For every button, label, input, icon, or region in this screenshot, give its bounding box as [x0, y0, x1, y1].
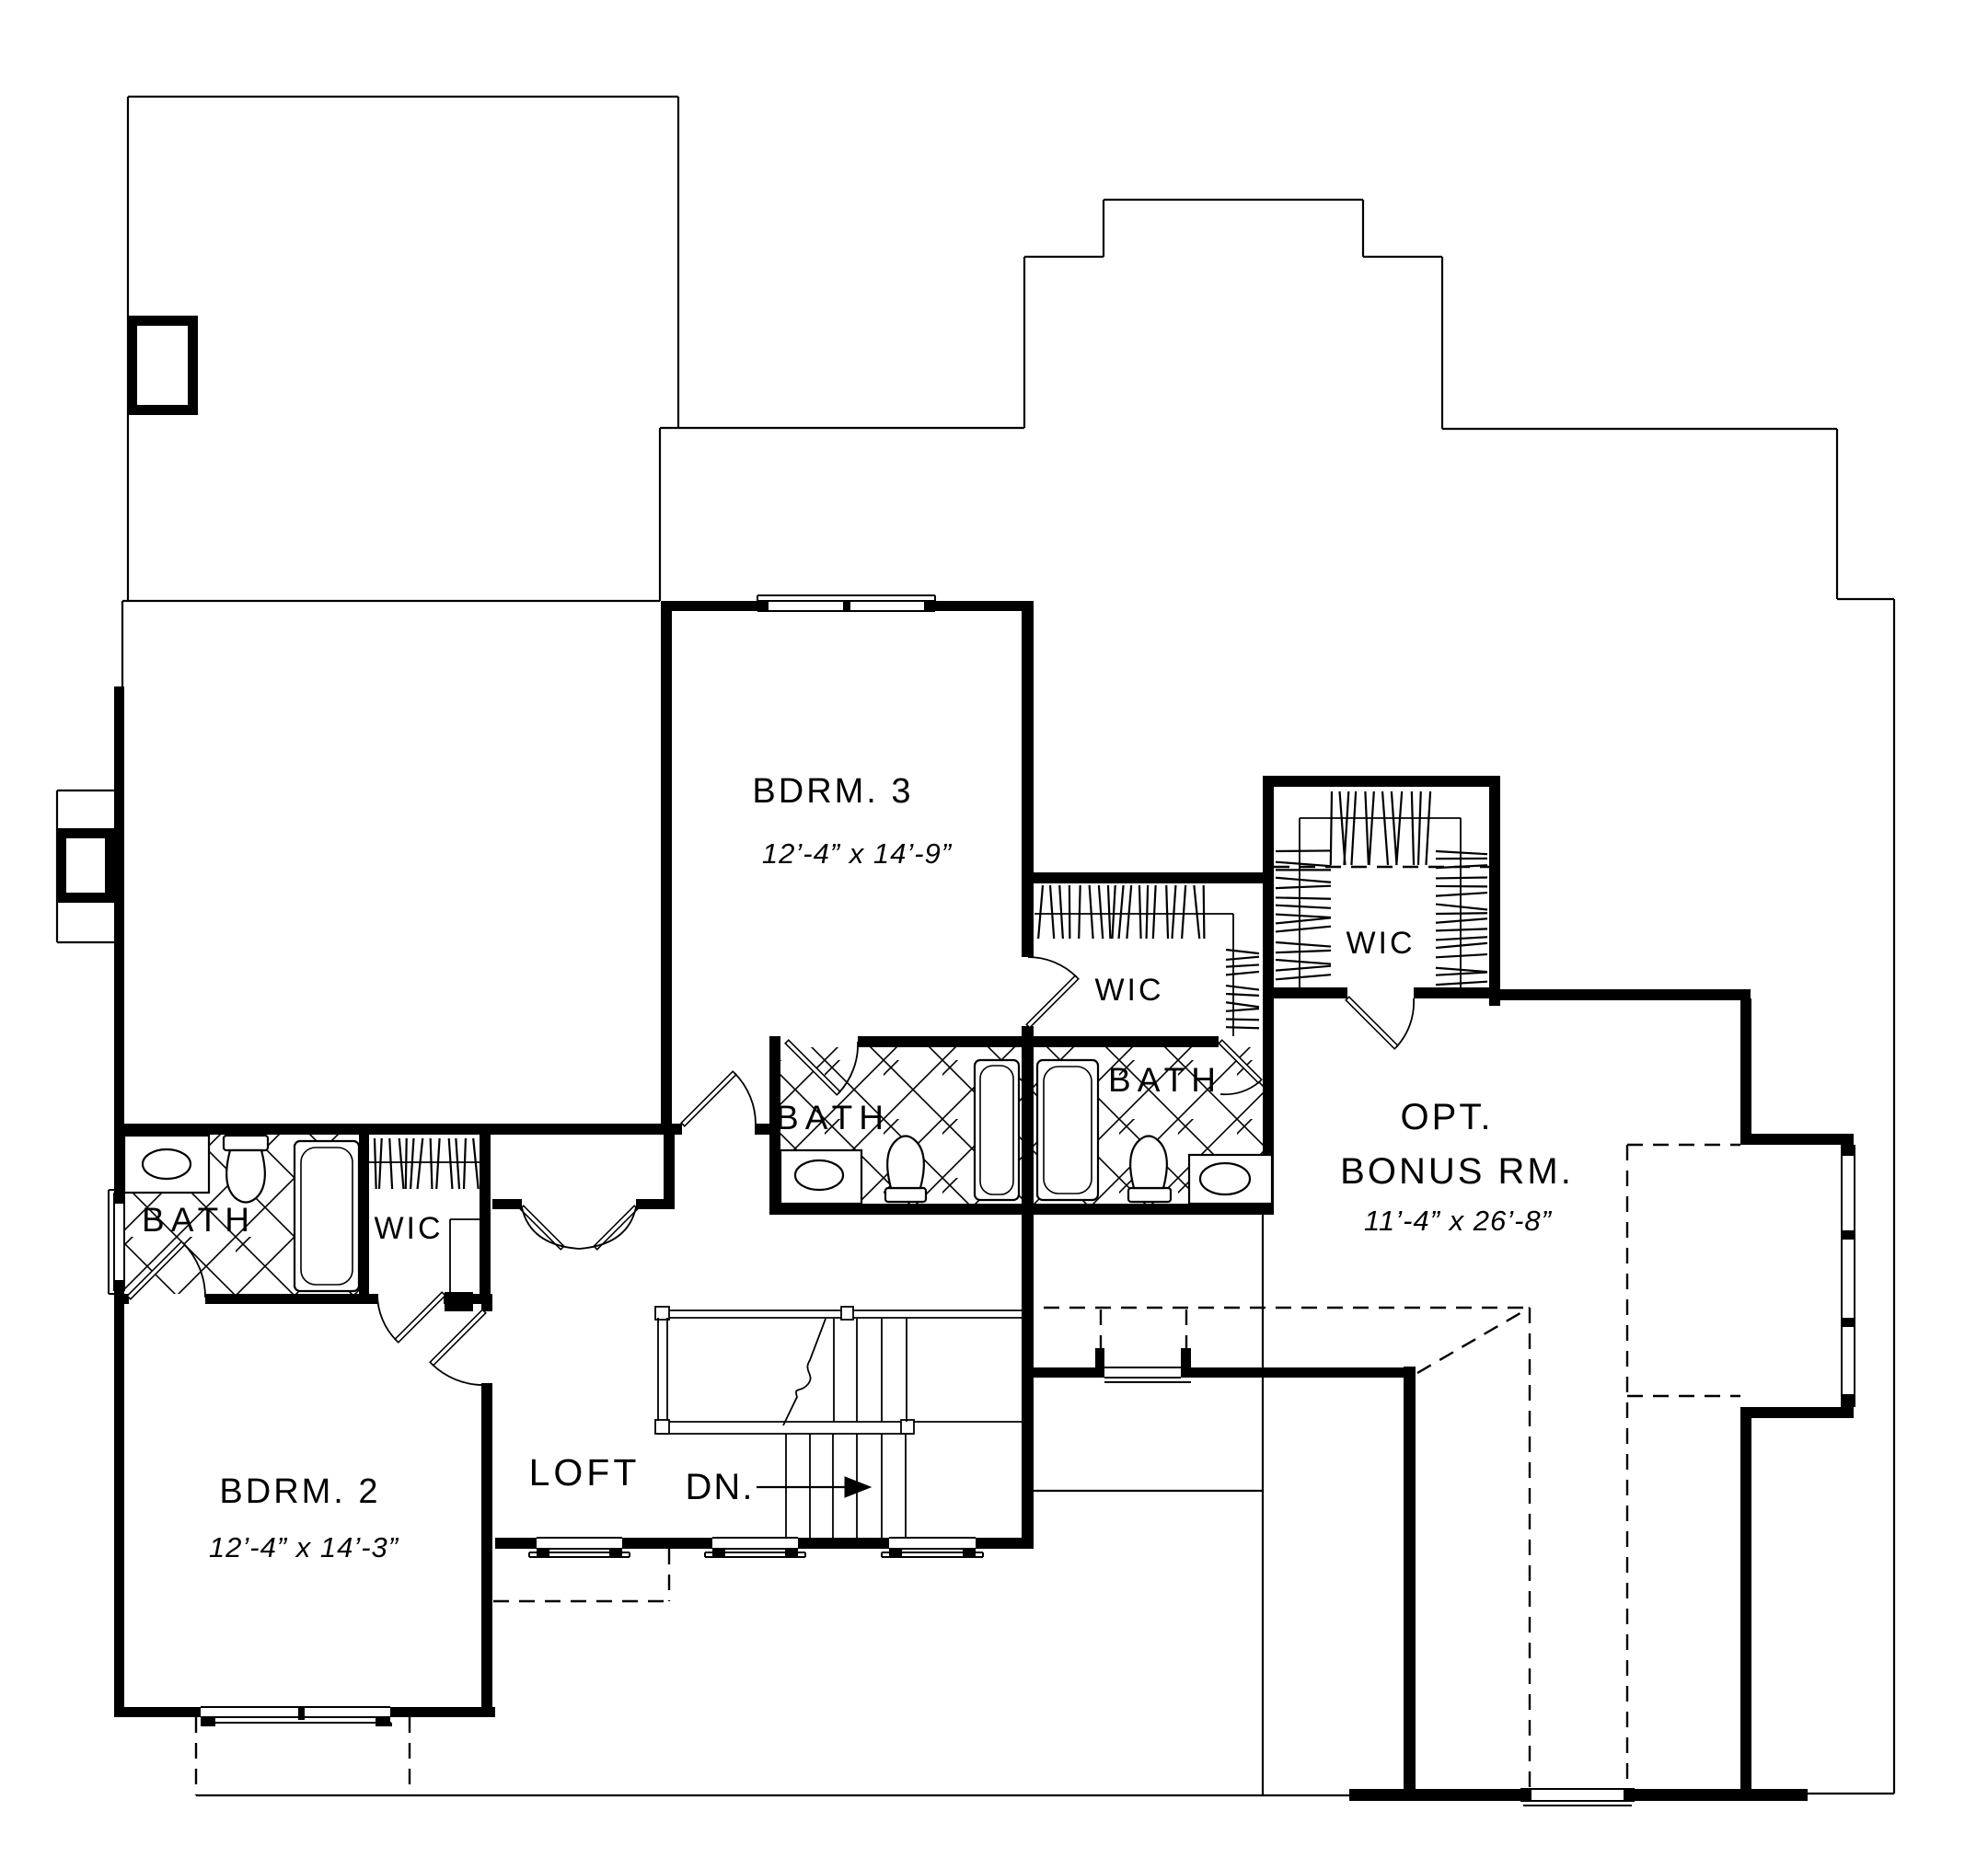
- svg-text:12’-4” x 14’-3”: 12’-4” x 14’-3”: [209, 1531, 399, 1563]
- svg-text:BATH: BATH: [142, 1201, 256, 1239]
- svg-text:BONUS RM.: BONUS RM.: [1340, 1151, 1574, 1192]
- svg-text:OPT.: OPT.: [1401, 1097, 1494, 1137]
- svg-text:11’-4” x 26’-8”: 11’-4” x 26’-8”: [1364, 1205, 1553, 1237]
- svg-text:WIC: WIC: [1094, 973, 1163, 1008]
- svg-text:BDRM. 3: BDRM. 3: [752, 772, 913, 811]
- svg-text:BDRM. 2: BDRM. 2: [219, 1472, 380, 1511]
- svg-text:BATH: BATH: [776, 1099, 890, 1136]
- svg-text:WIC: WIC: [1346, 926, 1415, 961]
- svg-text:BATH: BATH: [1108, 1061, 1222, 1099]
- svg-text:12’-4” x 14’-9”: 12’-4” x 14’-9”: [762, 837, 953, 870]
- svg-text:LOFT: LOFT: [529, 1451, 641, 1494]
- svg-text:DN.: DN.: [686, 1467, 755, 1507]
- svg-text:WIC: WIC: [374, 1211, 443, 1246]
